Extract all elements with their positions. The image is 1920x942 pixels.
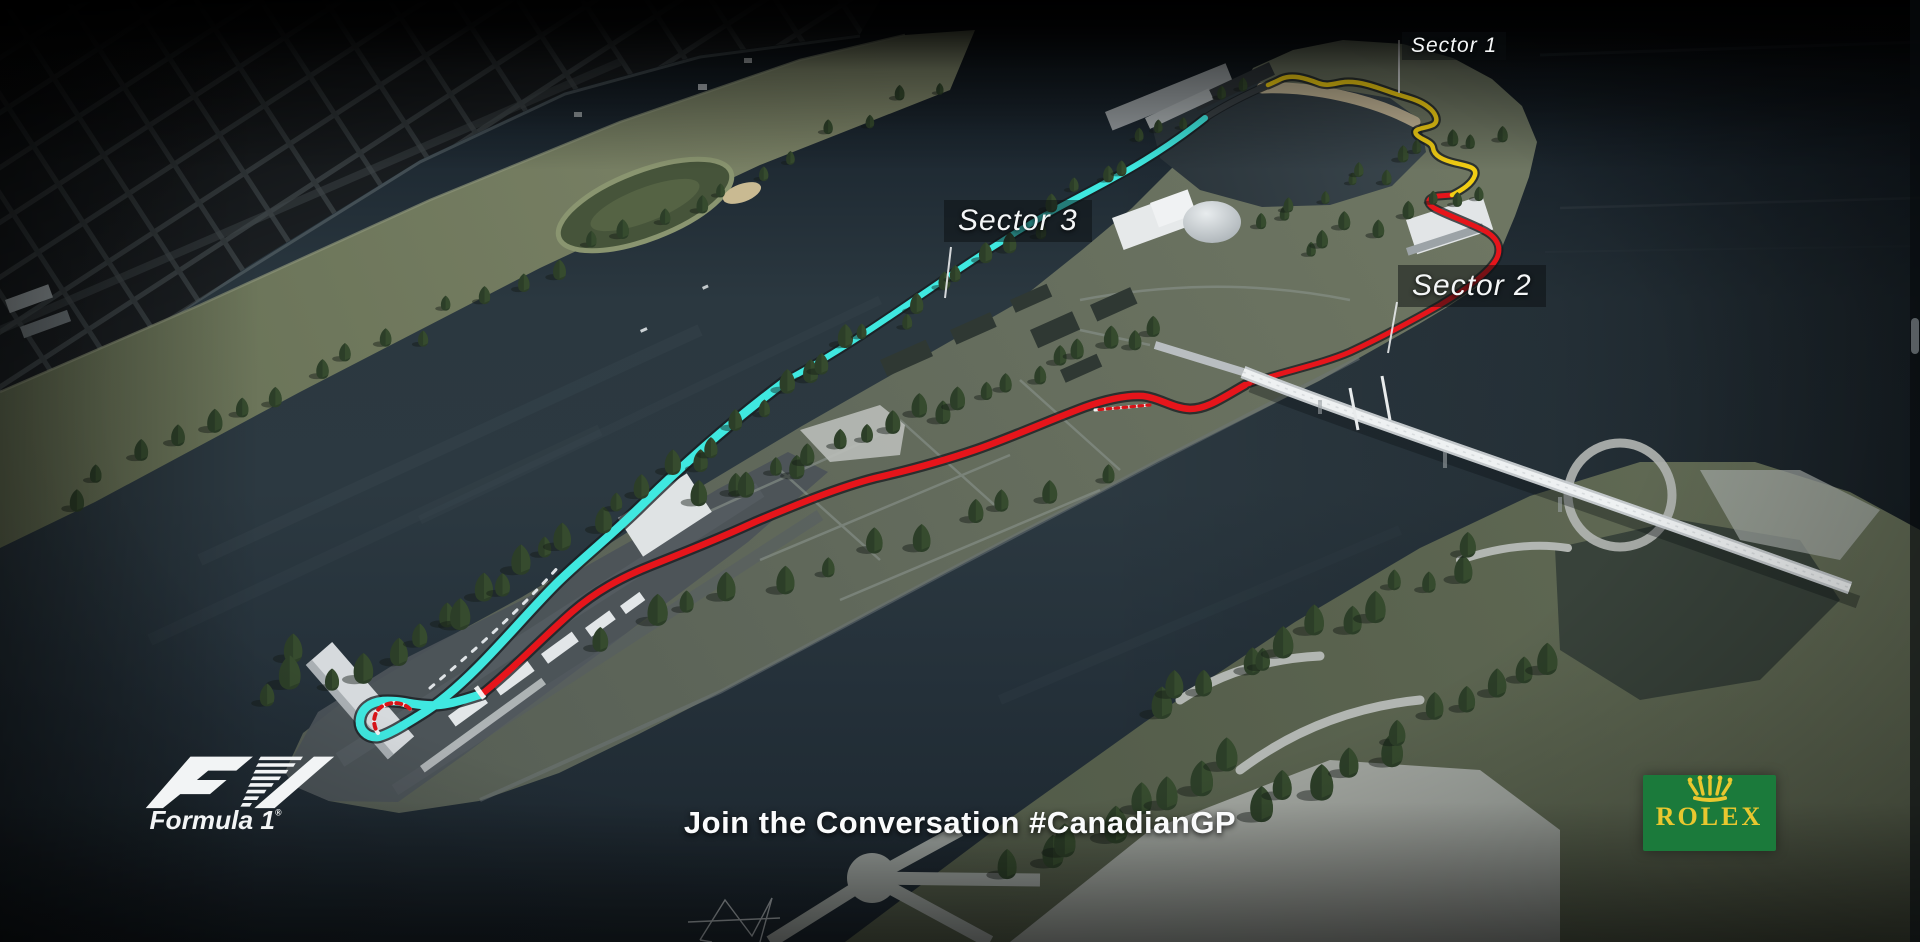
f1-wordmark: Formula 1® [150,805,282,835]
rolex-logo: ROLEX [1643,775,1776,851]
scrollbar-track[interactable] [1910,0,1920,942]
hashtag-cta-text: Join the Conversation #CanadianGP [684,805,1236,841]
rolex-wordmark: ROLEX [1656,804,1763,830]
sector-1-label: Sector 1 [1402,32,1506,60]
sector-3-label: Sector 3 [944,200,1092,242]
broadcast-frame: Sector 1 Sector 3 Sector 2 Join the Conv… [0,0,1920,942]
f1-logo: Formula 1® [142,752,342,838]
scrollbar-thumb[interactable] [1911,318,1919,354]
rolex-crown-icon [1686,775,1734,802]
sector-2-label: Sector 2 [1398,265,1546,307]
